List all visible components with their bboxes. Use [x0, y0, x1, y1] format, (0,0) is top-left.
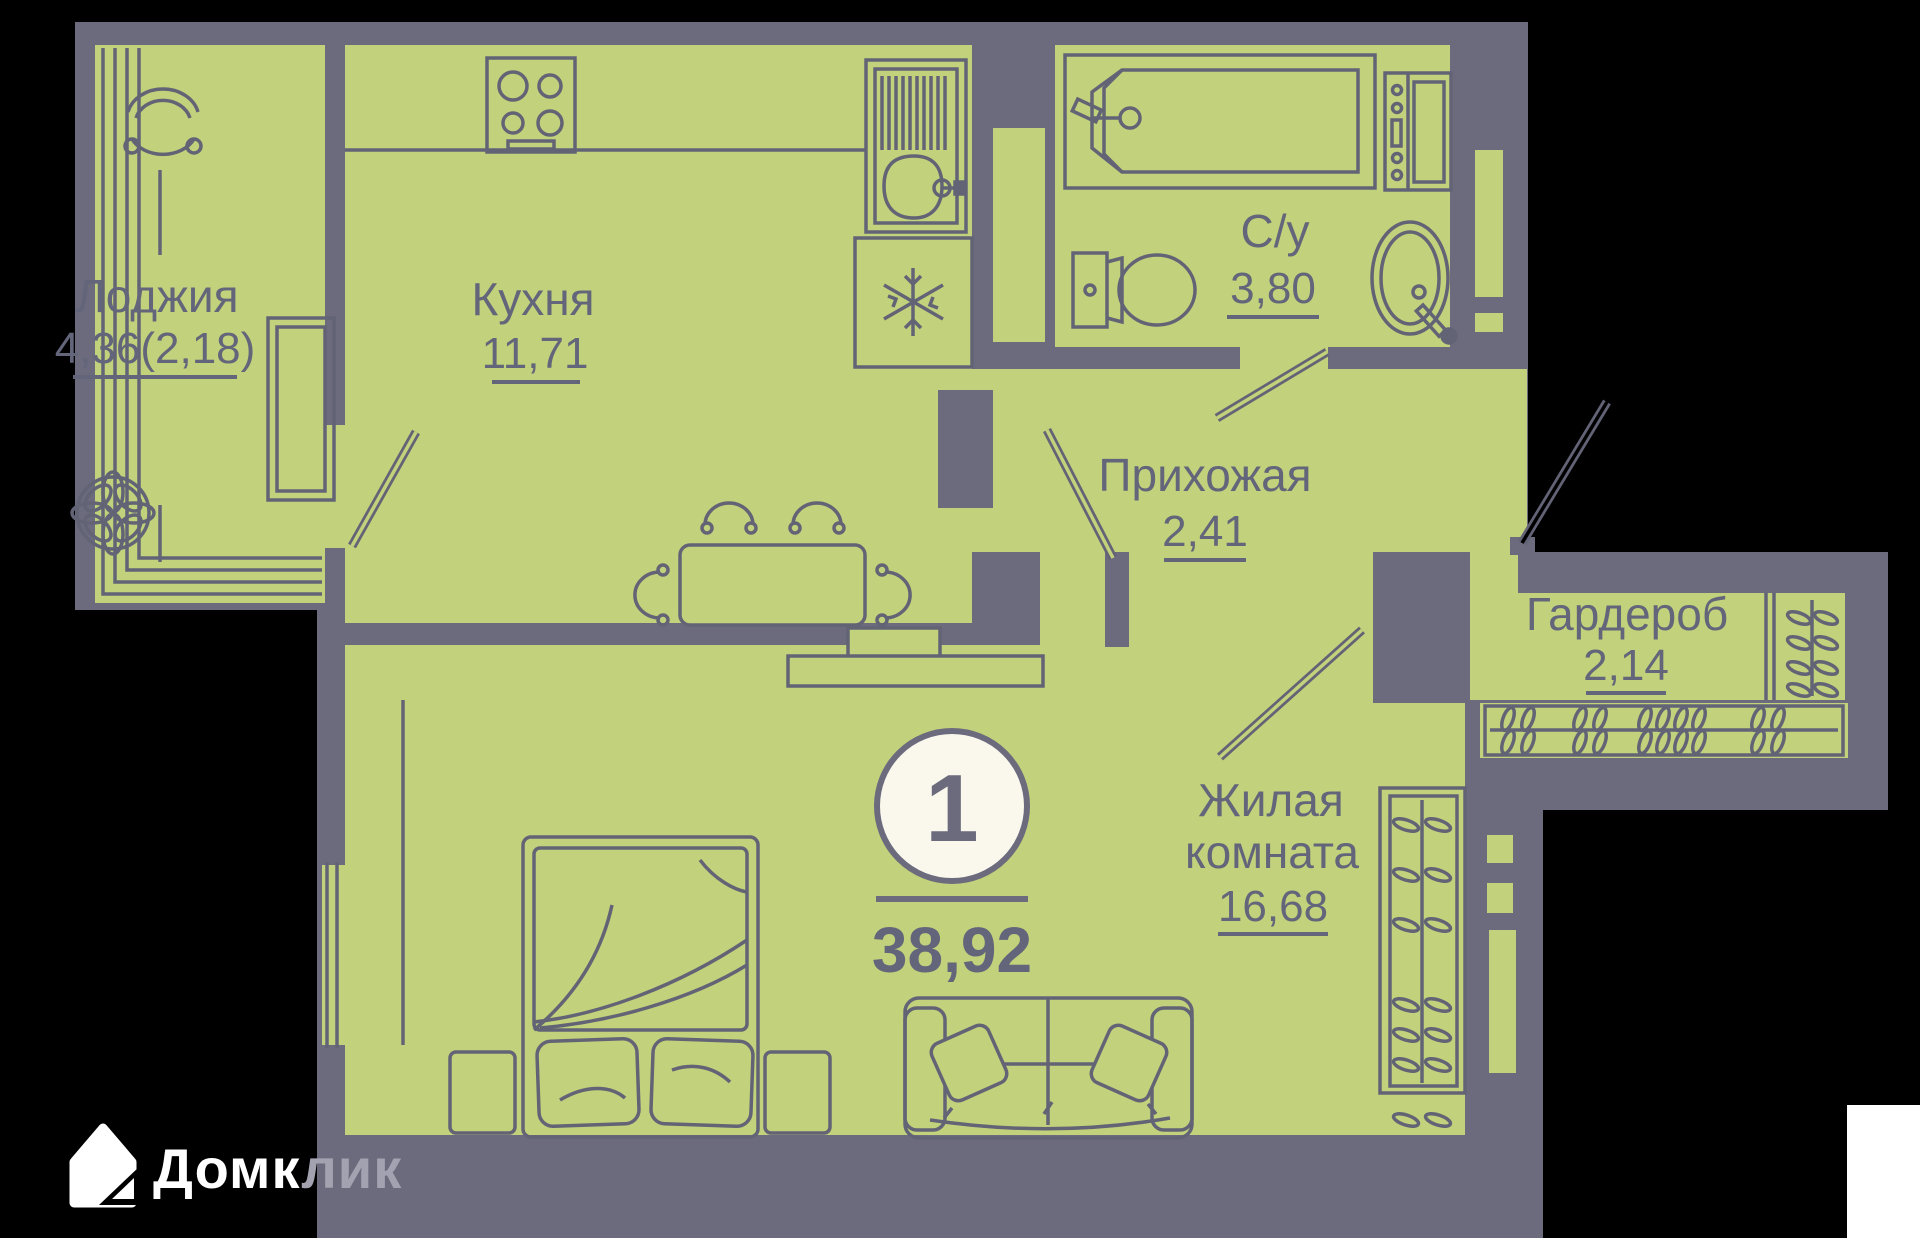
- room-label-living-2: комната: [1185, 826, 1359, 878]
- wall-stub-kitchen: [938, 390, 993, 508]
- floorplan-svg: Лоджия 4,36(2,18) Кухня 11,71 С/у 3,80 П…: [0, 0, 1920, 1256]
- living-door-gap: [1040, 552, 1105, 647]
- area-label-living: 16,68: [1218, 882, 1328, 931]
- floorplan-page: Лоджия 4,36(2,18) Кухня 11,71 С/у 3,80 П…: [0, 0, 1920, 1256]
- wall-stub-hall: [1105, 552, 1129, 647]
- room-label-wardrobe: Гардероб: [1526, 588, 1728, 640]
- vent-nub-2: [1487, 883, 1513, 913]
- room-label-bathroom: С/у: [1241, 205, 1310, 257]
- entry-door-gap: [1470, 552, 1518, 593]
- area-label-bathroom: 3,80: [1230, 264, 1316, 313]
- summary-badge: 1 38,92: [872, 731, 1032, 986]
- vent-nub-1: [1487, 835, 1513, 863]
- room-label-loggia: Лоджия: [76, 270, 239, 322]
- rooms-count-label: 1: [925, 755, 978, 862]
- room-label-living-1: Жилая: [1198, 774, 1344, 826]
- shaft-niche-2: [1475, 313, 1503, 332]
- duct-niche: [993, 128, 1045, 342]
- logo-text-overlap: лик: [301, 1137, 402, 1200]
- wall-wardrobe-left: [1373, 552, 1470, 703]
- hallway-arm: [1129, 552, 1373, 647]
- page-notch: [1847, 1105, 1920, 1238]
- area-label-kitchen: 11,71: [482, 329, 589, 378]
- area-label-hallway: 2,41: [1162, 507, 1248, 556]
- room-kitchen: [345, 45, 972, 623]
- area-label-loggia: 4,36(2,18): [55, 324, 256, 373]
- total-area-label: 38,92: [872, 914, 1032, 986]
- room-label-hallway: Прихожая: [1098, 449, 1311, 501]
- logo-text: Домклик: [153, 1137, 402, 1200]
- shaft-niche-1: [1475, 150, 1503, 297]
- logo-text-primary: Домк: [153, 1137, 301, 1200]
- area-label-wardrobe: 2,14: [1583, 641, 1669, 690]
- room-label-kitchen: Кухня: [471, 273, 594, 325]
- vent-nub-3: [1489, 930, 1516, 1073]
